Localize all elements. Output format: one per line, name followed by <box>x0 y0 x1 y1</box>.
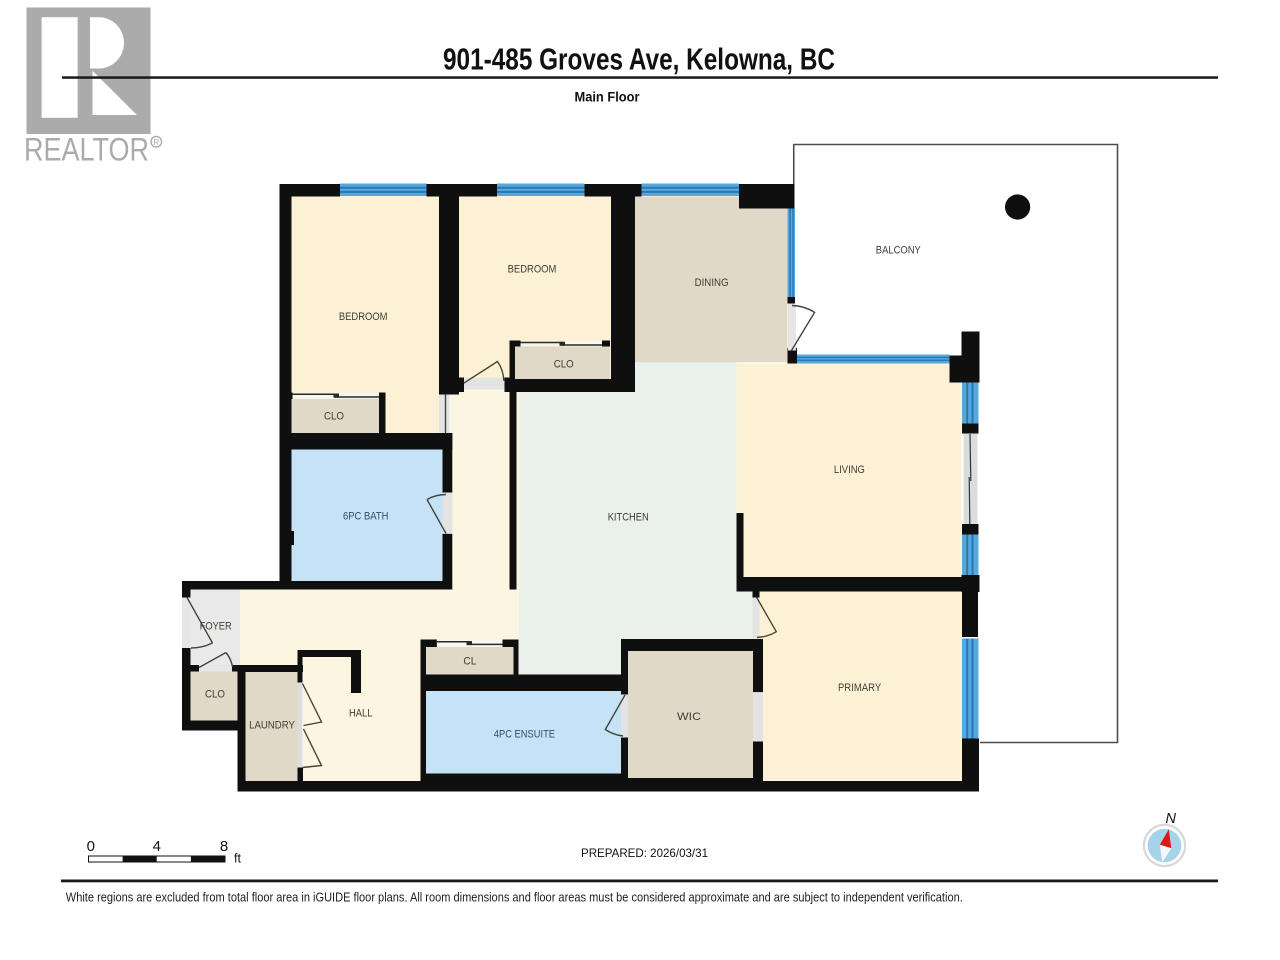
svg-text:6PC BATH: 6PC BATH <box>343 511 389 523</box>
svg-text:PREPARED: 2026/03/31: PREPARED: 2026/03/31 <box>581 846 708 860</box>
svg-text:KITCHEN: KITCHEN <box>608 511 649 523</box>
svg-text:ft: ft <box>234 852 241 866</box>
svg-text:BALCONY: BALCONY <box>876 244 921 256</box>
svg-text:WIC: WIC <box>677 711 701 723</box>
svg-text:REALTOR: REALTOR <box>24 132 149 168</box>
svg-text:4: 4 <box>153 838 161 855</box>
svg-text:CLO: CLO <box>205 689 225 701</box>
svg-text:PRIMARY: PRIMARY <box>838 682 881 694</box>
svg-text:CLO: CLO <box>324 411 344 423</box>
svg-text:N: N <box>1166 811 1177 827</box>
svg-text:901-485 Groves Ave, Kelowna, B: 901-485 Groves Ave, Kelowna, BC <box>443 42 835 77</box>
svg-text:LIVING: LIVING <box>834 464 865 476</box>
svg-text:0: 0 <box>87 838 95 855</box>
svg-text:BEDROOM: BEDROOM <box>339 311 388 323</box>
svg-text:HALL: HALL <box>349 708 372 720</box>
svg-text:DINING: DINING <box>695 277 729 289</box>
svg-text:LAUNDRY: LAUNDRY <box>249 719 295 731</box>
svg-text:R: R <box>153 138 159 147</box>
svg-text:BEDROOM: BEDROOM <box>508 263 557 275</box>
svg-text:FOYER: FOYER <box>200 621 232 633</box>
svg-text:White regions are excluded fro: White regions are excluded from total fl… <box>66 891 963 905</box>
svg-text:4PC ENSUITE: 4PC ENSUITE <box>494 729 555 741</box>
svg-text:CL: CL <box>463 656 476 668</box>
svg-text:8: 8 <box>220 838 228 855</box>
svg-text:CLO: CLO <box>554 359 574 371</box>
svg-text:Main Floor: Main Floor <box>575 89 640 105</box>
